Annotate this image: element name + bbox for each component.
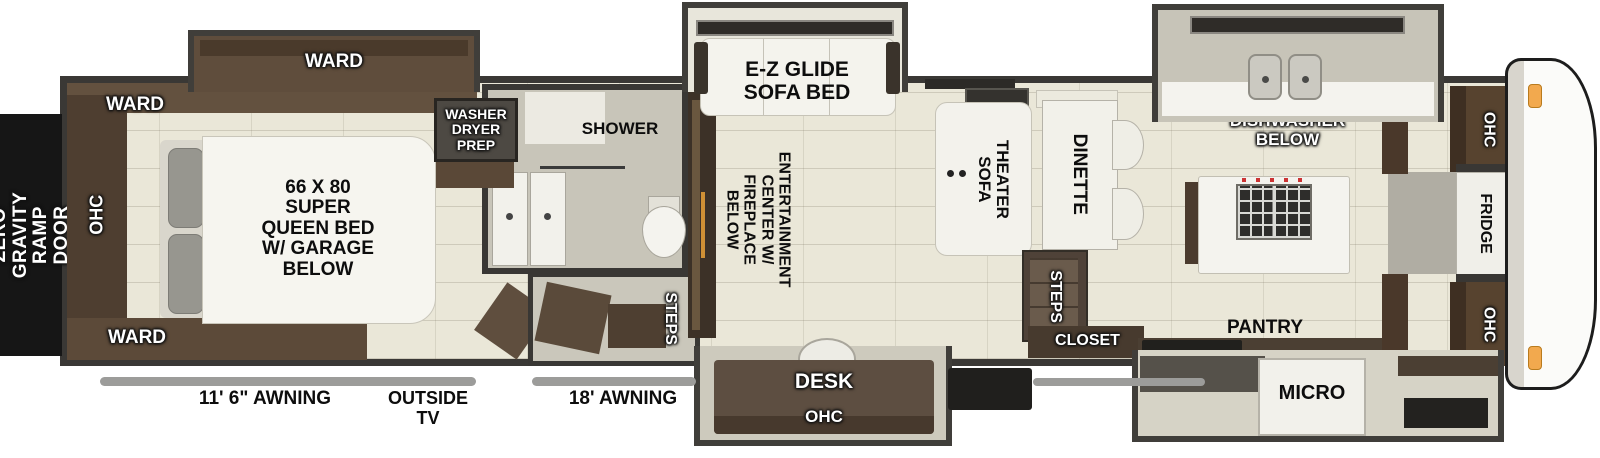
ward-lower-label: WARD	[82, 328, 192, 349]
outside-tv-label: OUTSIDE TV	[368, 389, 488, 429]
bath-cabinet	[436, 162, 514, 188]
dinette-label: DINETTE	[1069, 133, 1090, 214]
ramp-door: ZERO GRAVITY RAMP DOOR	[0, 114, 62, 356]
entry-door-step	[948, 368, 1032, 410]
micro-slide-counter	[1140, 356, 1265, 392]
bathroom-sink	[530, 172, 566, 266]
marker-light	[1528, 346, 1542, 370]
kitchen-counter-block	[1388, 172, 1460, 274]
tall-cabinet	[1382, 274, 1408, 354]
queen-bed-label: 66 X 80 SUPER QUEEN BED W/ GARAGE BELOW	[262, 178, 375, 281]
window	[1190, 16, 1405, 34]
fridge-label: FRIDGE	[1476, 194, 1493, 254]
cupholder	[947, 170, 954, 177]
cooktop-knobs	[1242, 178, 1304, 182]
micro-slide-window	[1404, 398, 1488, 428]
kitchen-sink	[1248, 54, 1282, 100]
closet-label: CLOSET	[1040, 332, 1135, 350]
ward-slide-label: WARD	[188, 52, 480, 73]
bedroom-ohc-label: OHC	[87, 195, 106, 235]
desk-label: DESK	[714, 370, 934, 393]
micro-slide-cabinet	[1398, 356, 1498, 376]
marker-light	[1528, 84, 1542, 108]
awning-bar-left	[100, 377, 476, 386]
ramp-door-label: ZERO GRAVITY RAMP DOOR	[0, 192, 72, 279]
kitchen-sink	[1288, 54, 1322, 100]
ward-upper-label: WARD	[80, 95, 190, 116]
theater-sofa-label: THEATER SOFA	[974, 139, 1011, 218]
cooktop	[1236, 184, 1312, 240]
awning-bar-right	[532, 377, 696, 386]
floorplan-diagram: ZERO GRAVITY RAMP DOOR OHC WARD WARD 66 …	[0, 0, 1600, 458]
bed-pillow	[168, 148, 204, 228]
micro-label: MICRO	[1258, 382, 1366, 404]
sofa-bed-label: E-Z GLIDE SOFA BED	[700, 58, 894, 104]
ohc-bottom-label: OHC	[1480, 307, 1497, 343]
body-skirt-bar	[1033, 378, 1205, 386]
entertainment-center-label: ENTERTAINMENT CENTER W/ FIREPLACE BELOW	[723, 152, 792, 288]
window	[696, 20, 894, 36]
entertainment-center-face	[692, 100, 700, 330]
pantry-label: PANTRY	[1200, 318, 1330, 339]
shower-label: SHOWER	[560, 120, 680, 139]
desk-ohc-label: OHC	[714, 408, 934, 427]
shower-rod	[540, 166, 625, 169]
steps-right-label: STEPS	[1046, 271, 1063, 323]
fireplace-glow	[701, 192, 705, 258]
awning-left-label: 11' 6" AWNING	[160, 389, 370, 410]
washer-dryer-prep-label: WASHER DRYER PREP	[445, 107, 506, 152]
steps-left-label: STEPS	[661, 293, 678, 345]
ohc-top-label: OHC	[1480, 112, 1497, 148]
front-cap	[1505, 58, 1597, 390]
awning-right-label: 18' AWNING	[548, 389, 698, 410]
bed-pillow	[168, 234, 204, 314]
